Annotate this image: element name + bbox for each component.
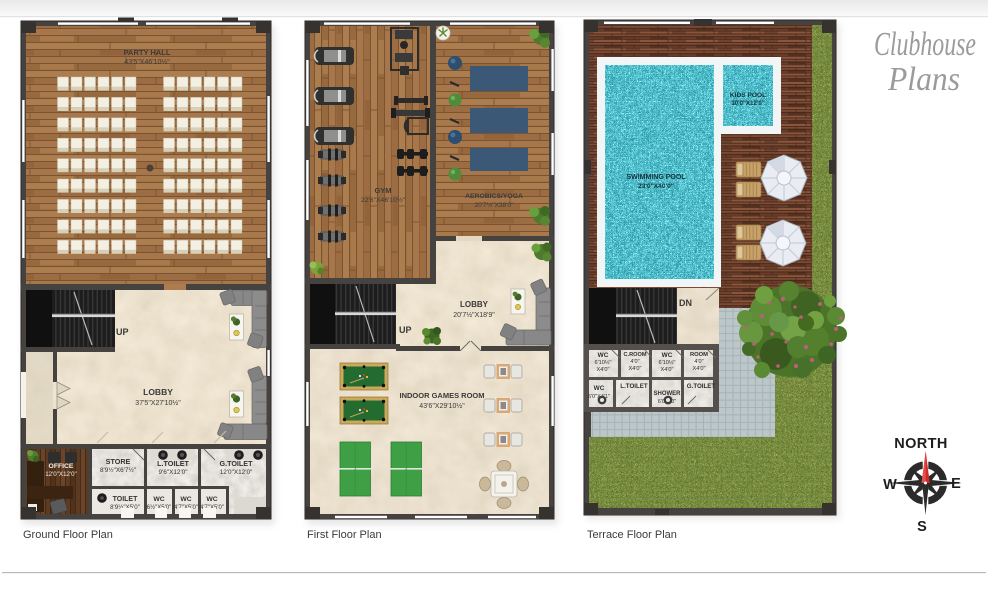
svg-text:43'5"X46'10½": 43'5"X46'10½" bbox=[124, 58, 170, 66]
svg-text:L.TOILET: L.TOILET bbox=[620, 383, 648, 390]
svg-text:Terrace Floor Plan: Terrace Floor Plan bbox=[587, 529, 677, 541]
svg-text:12'0"X12'0": 12'0"X12'0" bbox=[45, 471, 77, 478]
svg-text:ROOM: ROOM bbox=[690, 352, 708, 358]
svg-text:X4'0": X4'0" bbox=[692, 366, 705, 372]
svg-text:WC: WC bbox=[206, 496, 217, 503]
svg-text:20'7½"X38'0": 20'7½"X38'0" bbox=[474, 201, 514, 209]
svg-text:WC: WC bbox=[594, 385, 605, 392]
svg-text:X4'0": X4'0" bbox=[660, 367, 673, 373]
svg-text:WC: WC bbox=[598, 352, 609, 359]
svg-text:4'0": 4'0" bbox=[694, 359, 703, 365]
svg-text:INDOOR GAMES ROOM: INDOOR GAMES ROOM bbox=[399, 391, 484, 400]
svg-text:W: W bbox=[883, 477, 897, 493]
svg-text:6'10½": 6'10½" bbox=[658, 359, 675, 366]
svg-text:TOILET: TOILET bbox=[113, 496, 138, 503]
svg-text:STORE: STORE bbox=[106, 457, 131, 466]
svg-text:AEROBICS/YOGA: AEROBICS/YOGA bbox=[465, 193, 523, 200]
svg-text:8'9½"X6'7½": 8'9½"X6'7½" bbox=[100, 466, 136, 474]
svg-text:First Floor Plan: First Floor Plan bbox=[307, 529, 382, 541]
svg-text:KIDS POOL: KIDS POOL bbox=[730, 92, 766, 99]
svg-text:LOBBY: LOBBY bbox=[143, 387, 173, 397]
svg-text:WC: WC bbox=[153, 496, 164, 503]
svg-text:WC: WC bbox=[180, 496, 191, 503]
svg-text:Clubhouse: Clubhouse bbox=[874, 26, 976, 63]
svg-text:37'5"X27'10½": 37'5"X27'10½" bbox=[135, 399, 181, 407]
svg-text:OFFICE: OFFICE bbox=[49, 463, 74, 470]
svg-text:X4'0": X4'0" bbox=[596, 367, 609, 373]
svg-text:12'0"X12'0": 12'0"X12'0" bbox=[220, 469, 253, 476]
svg-text:E: E bbox=[951, 476, 961, 492]
svg-text:GYM: GYM bbox=[374, 186, 391, 195]
svg-text:C.ROOM: C.ROOM bbox=[624, 352, 647, 358]
svg-text:WC: WC bbox=[662, 352, 673, 359]
svg-text:UP: UP bbox=[399, 325, 412, 335]
svg-text:9'6"X12'0": 9'6"X12'0" bbox=[158, 469, 187, 476]
svg-text:23'0"X40'0": 23'0"X40'0" bbox=[638, 183, 674, 190]
svg-text:X4'0": X4'0" bbox=[628, 366, 641, 372]
svg-text:4'0": 4'0" bbox=[630, 359, 639, 365]
svg-text:10'0"X12'0": 10'0"X12'0" bbox=[731, 100, 765, 107]
svg-text:43'6"X29'10½": 43'6"X29'10½" bbox=[419, 402, 465, 410]
svg-text:L.TOILET: L.TOILET bbox=[157, 459, 189, 468]
svg-text:S: S bbox=[917, 519, 927, 535]
svg-text:UP: UP bbox=[116, 327, 129, 337]
svg-text:6'10½": 6'10½" bbox=[594, 359, 611, 366]
svg-text:PARTY HALL: PARTY HALL bbox=[124, 48, 171, 57]
svg-text:SWIMMING POOL: SWIMMING POOL bbox=[626, 174, 686, 181]
svg-text:G.TOILET: G.TOILET bbox=[687, 383, 716, 390]
svg-text:DN: DN bbox=[679, 298, 692, 308]
svg-text:LOBBY: LOBBY bbox=[460, 300, 489, 309]
svg-text:NORTH: NORTH bbox=[894, 436, 948, 452]
svg-text:22'6"X46'10½": 22'6"X46'10½" bbox=[361, 196, 406, 204]
svg-text:Plans: Plans bbox=[887, 61, 960, 98]
svg-text:20'7½"X18'9": 20'7½"X18'9" bbox=[453, 311, 495, 319]
svg-text:G.TOILET: G.TOILET bbox=[219, 459, 253, 468]
svg-text:Ground Floor Plan: Ground Floor Plan bbox=[23, 529, 113, 541]
